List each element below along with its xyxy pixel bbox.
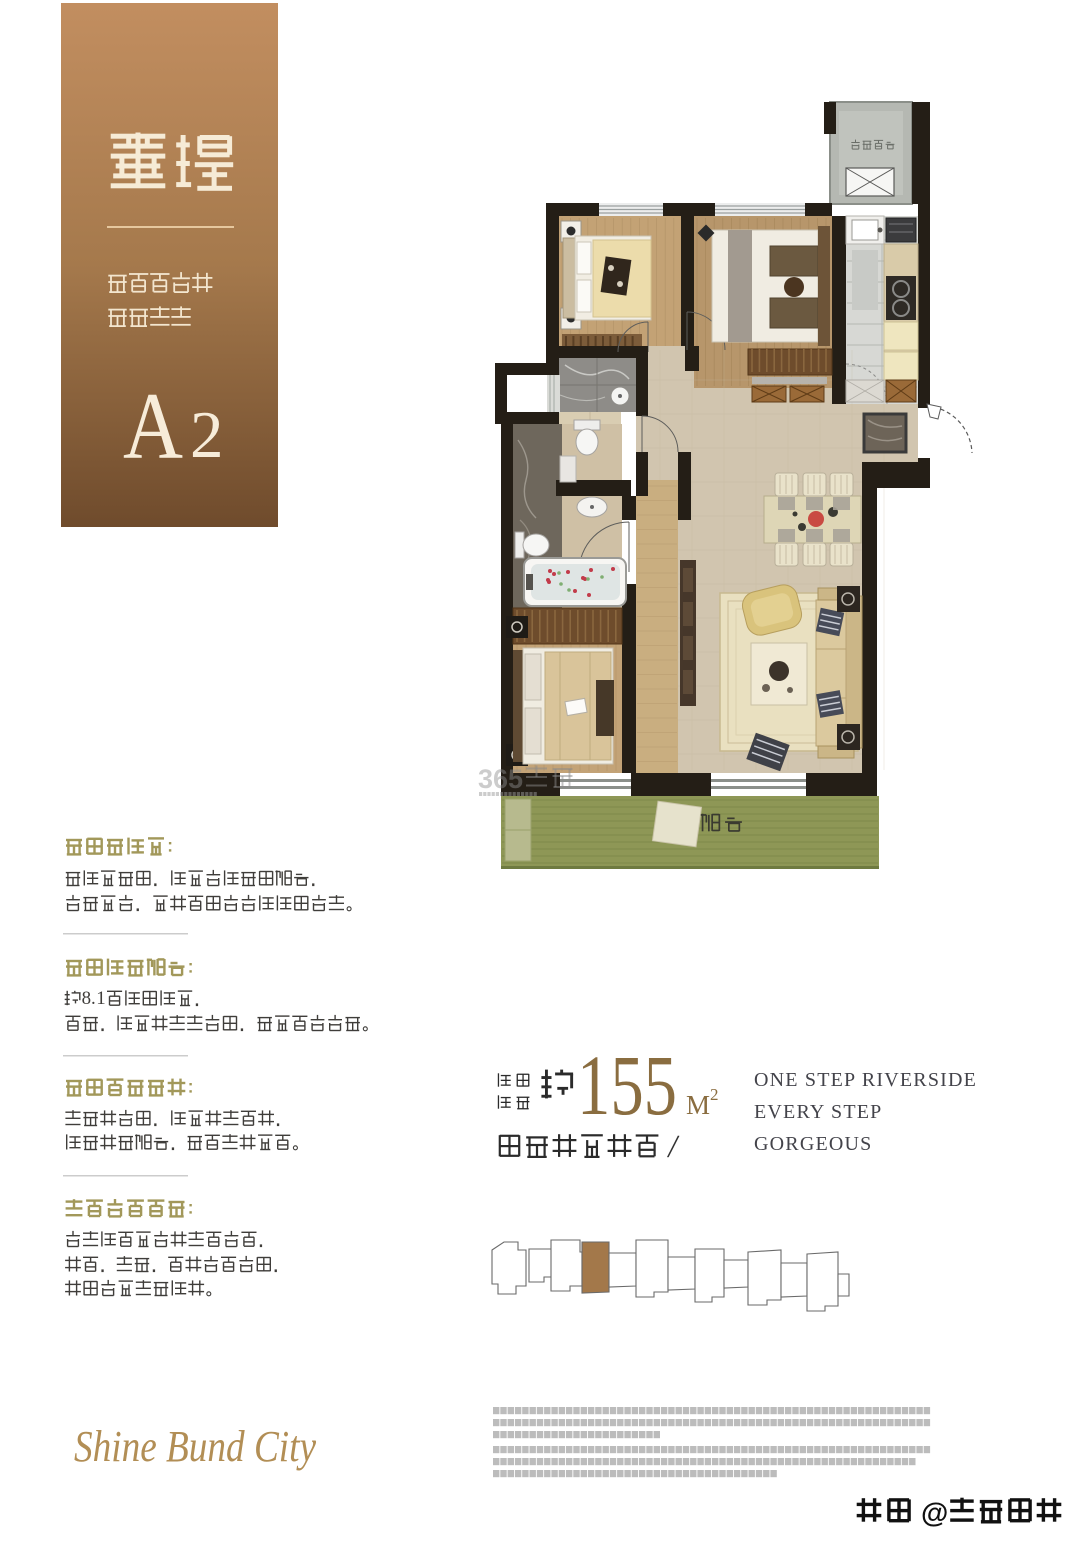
svg-text:Shine Bund City: Shine Bund City (74, 1422, 316, 1471)
svg-text:2: 2 (190, 398, 224, 472)
svg-text:/: / (666, 1128, 681, 1166)
svg-text:GORGEOUS: GORGEOUS (754, 1133, 873, 1155)
svg-text:A: A (123, 373, 183, 479)
svg-text:EVERY STEP: EVERY STEP (754, 1101, 883, 1123)
svg-text:.: . (91, 988, 96, 1009)
svg-text:@: @ (921, 1497, 948, 1528)
svg-text:365: 365 (478, 764, 523, 794)
svg-text:M: M (686, 1090, 710, 1120)
svg-text:1: 1 (96, 988, 105, 1009)
svg-text:2: 2 (710, 1085, 719, 1104)
svg-text:ONE STEP RIVERSIDE: ONE STEP RIVERSIDE (754, 1069, 977, 1091)
svg-text:155: 155 (577, 1037, 677, 1133)
svg-text:8: 8 (82, 988, 91, 1009)
